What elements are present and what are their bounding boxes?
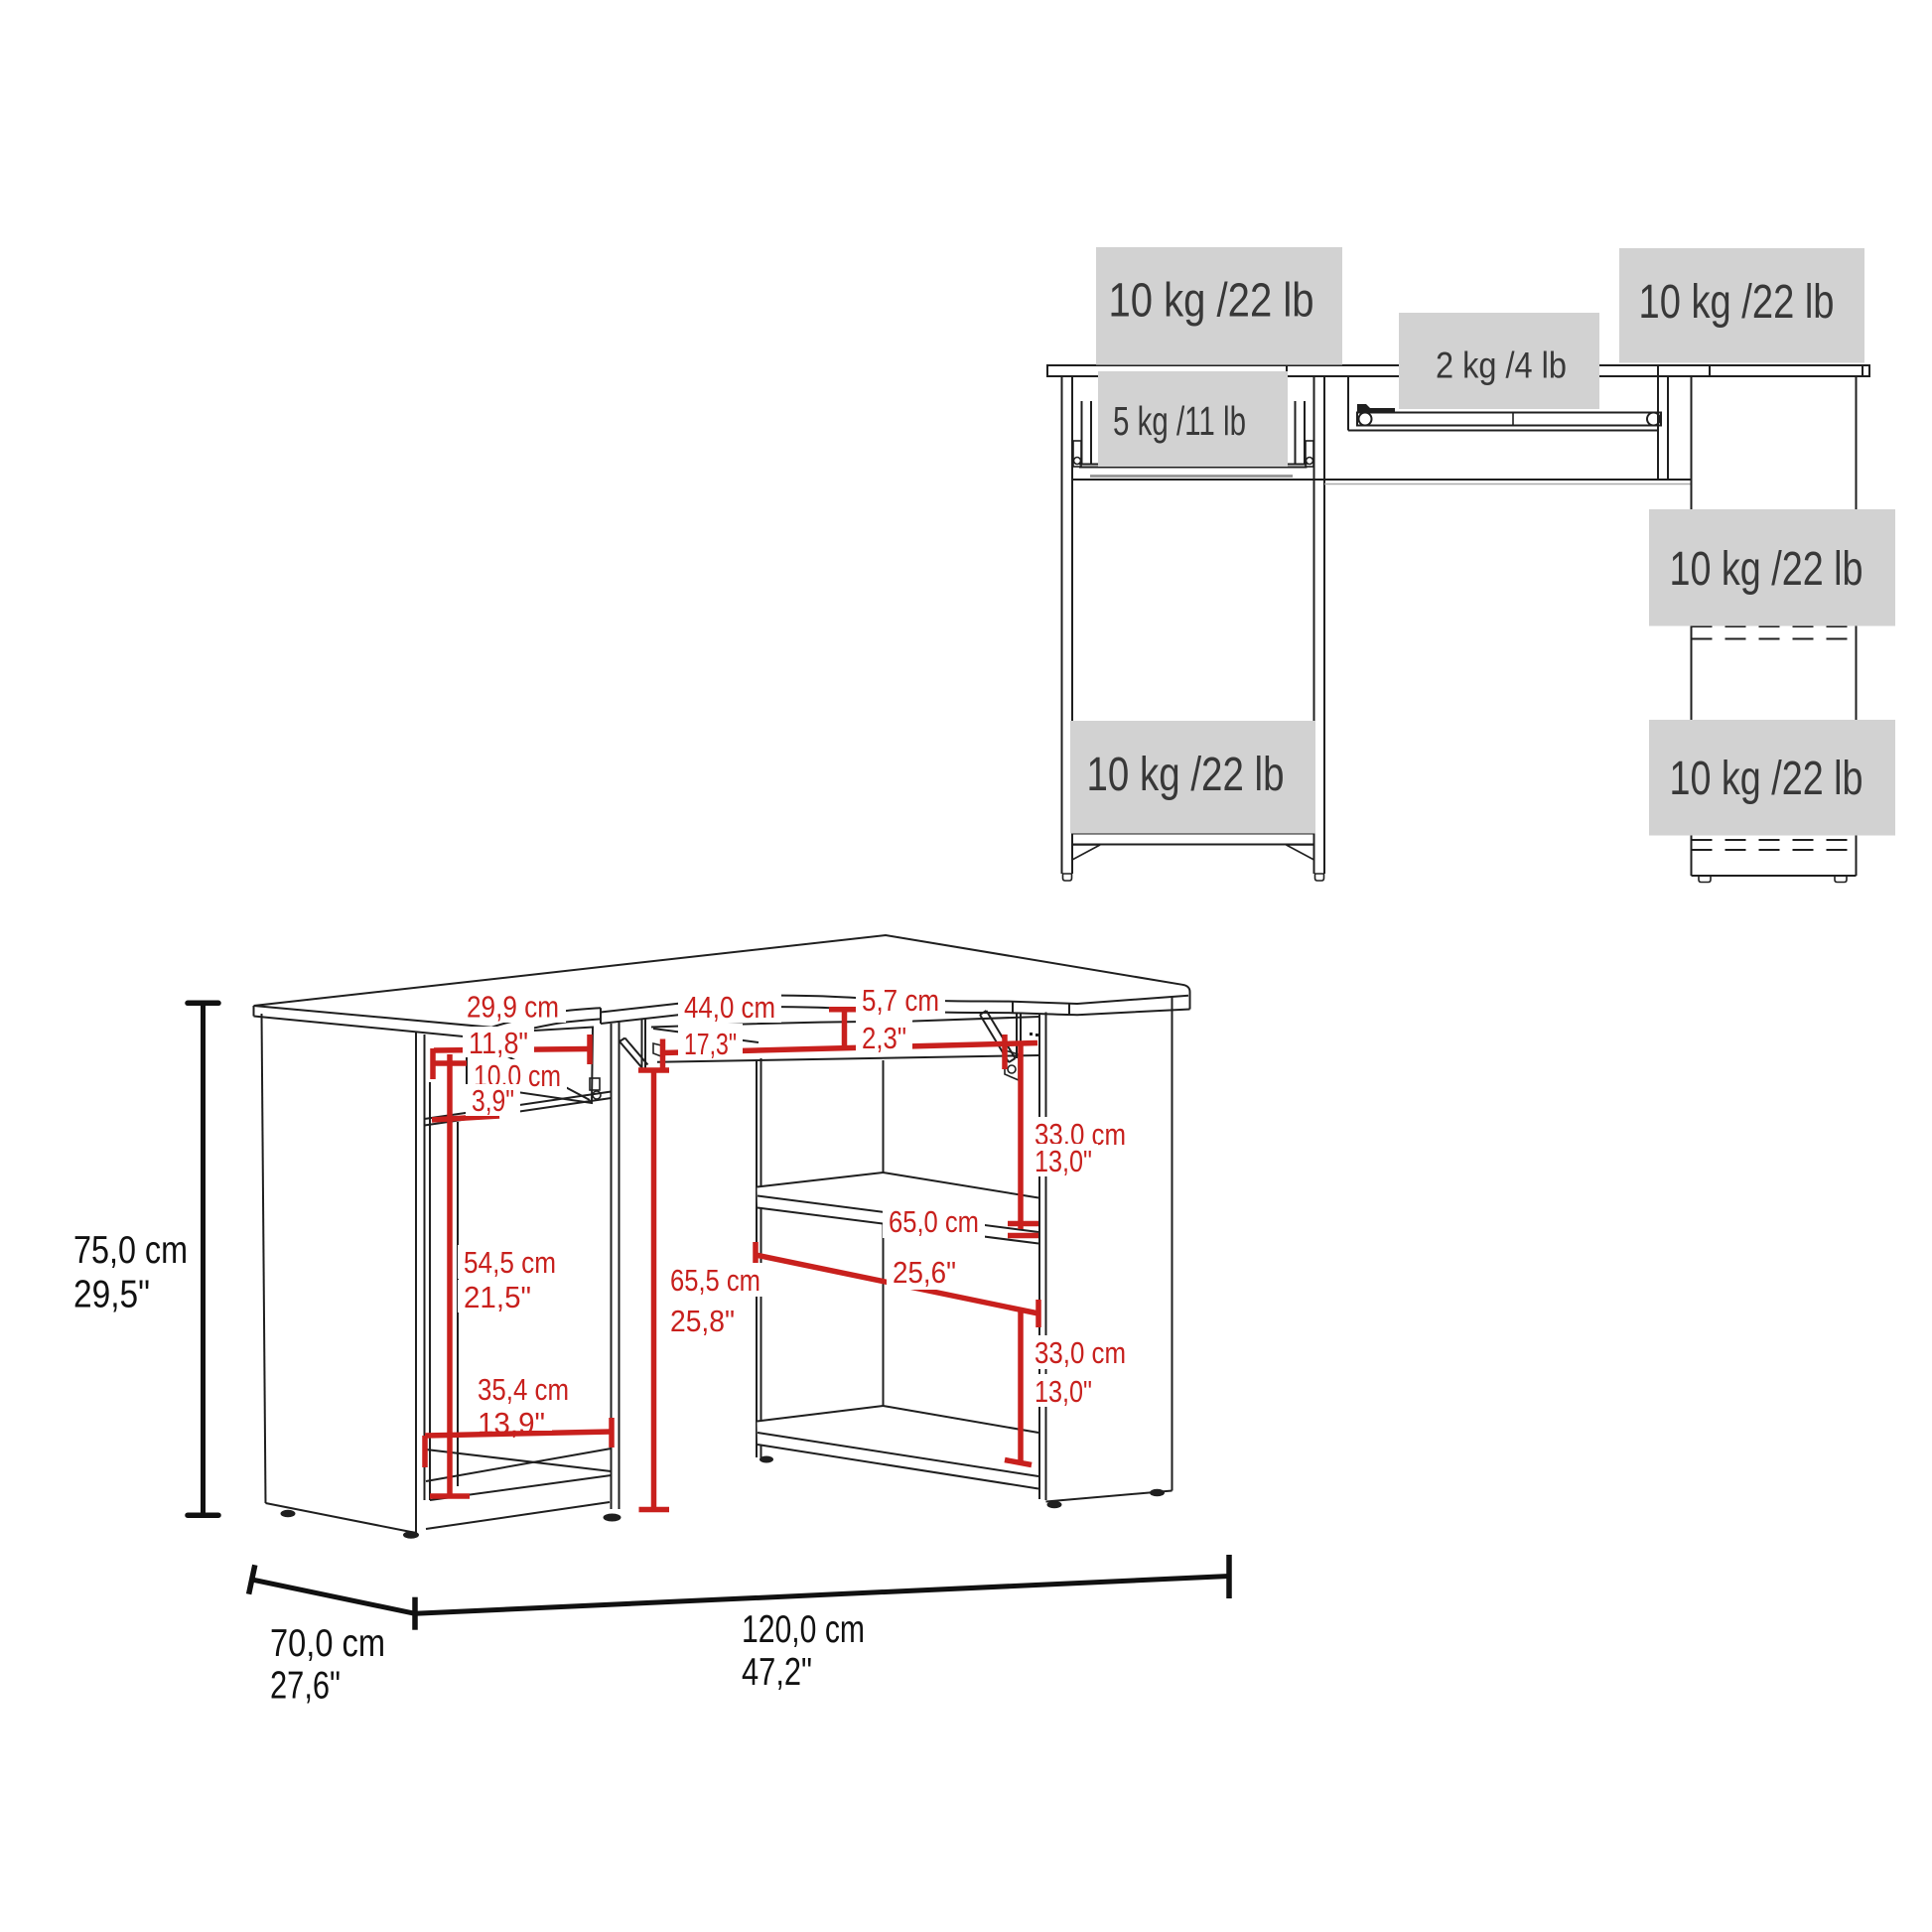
svg-text:13,9": 13,9" [478,1407,545,1441]
svg-text:25,6": 25,6" [893,1256,956,1290]
svg-text:13,0": 13,0" [1035,1145,1092,1178]
svg-text:75,0 cm: 75,0 cm [73,1229,188,1272]
svg-text:70,0 cm: 70,0 cm [270,1622,385,1665]
svg-text:21,5": 21,5" [464,1281,531,1314]
svg-text:2,3": 2,3" [862,1022,906,1055]
svg-text:65,5 cm: 65,5 cm [670,1264,760,1298]
svg-text:5,7 cm: 5,7 cm [862,984,939,1018]
svg-text:44,0 cm: 44,0 cm [684,991,775,1025]
svg-text:10 kg /22 lb: 10 kg /22 lb [1109,274,1314,328]
svg-text:29,5": 29,5" [73,1274,150,1316]
svg-text:10 kg /22 lb: 10 kg /22 lb [1670,752,1863,805]
svg-text:5 kg /11 lb: 5 kg /11 lb [1113,398,1246,444]
svg-text:35,4 cm: 35,4 cm [478,1373,569,1407]
svg-text:29,9 cm: 29,9 cm [467,991,559,1025]
svg-text:25,8": 25,8" [670,1305,735,1338]
svg-text:17,3": 17,3" [684,1028,737,1061]
svg-text:3,9": 3,9" [472,1084,514,1118]
svg-text:47,2": 47,2" [742,1651,812,1694]
svg-text:33,0 cm: 33,0 cm [1035,1336,1126,1370]
svg-text:54,5 cm: 54,5 cm [464,1246,556,1280]
svg-text:2 kg /4 lb: 2 kg /4 lb [1436,345,1567,386]
svg-text:11,8": 11,8" [469,1027,528,1060]
svg-text:13,0": 13,0" [1035,1375,1092,1409]
svg-text:10 kg /22 lb: 10 kg /22 lb [1670,542,1863,596]
svg-text:27,6": 27,6" [270,1665,341,1708]
svg-text:10 kg /22 lb: 10 kg /22 lb [1087,748,1285,801]
svg-text:65,0 cm: 65,0 cm [889,1205,979,1239]
svg-text:10 kg /22 lb: 10 kg /22 lb [1639,275,1835,329]
svg-text:120,0 cm: 120,0 cm [742,1608,865,1651]
